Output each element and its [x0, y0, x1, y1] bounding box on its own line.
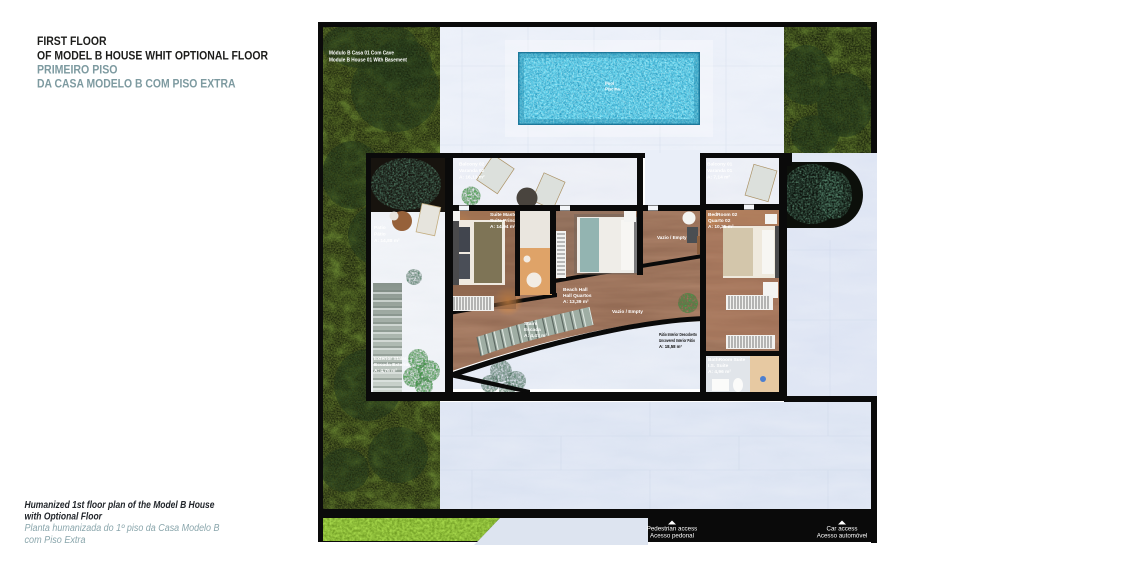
svg-text:Beach Hall: Beach Hall — [563, 287, 588, 293]
svg-text:Car access: Car access — [827, 526, 858, 533]
svg-text:Varanda 01: Varanda 01 — [707, 168, 733, 174]
svg-text:Varanda 02: Varanda 02 — [459, 168, 485, 174]
svg-text:Acesso pedonal: Acesso pedonal — [650, 533, 694, 540]
svg-text:with Optional Floor: with Optional Floor — [25, 512, 103, 523]
svg-text:Module B House 01 With Basemen: Module B House 01 With Basement — [329, 58, 407, 64]
svg-text:DA CASA MODELO B COM PISO EXT: DA CASA MODELO B COM PISO EXTRA — [37, 77, 236, 91]
svg-text:Balcony 01: Balcony 01 — [707, 162, 733, 168]
svg-text:Pool: Pool — [605, 81, 614, 86]
svg-text:Pátio Interior Descoberto: Pátio Interior Descoberto — [659, 332, 697, 337]
svg-text:Escada Exterior: Escada Exterior — [374, 362, 410, 368]
svg-text:A: 13,39 m²: A: 13,39 m² — [563, 299, 589, 305]
svg-text:Piscina: Piscina — [605, 86, 620, 91]
svg-text:Módulo B Casa 01 Com Cave: Módulo B Casa 01 Com Cave — [329, 51, 394, 57]
svg-text:BedRoom 02: BedRoom 02 — [708, 212, 738, 218]
svg-text:com Piso Extra: com Piso Extra — [25, 535, 86, 546]
svg-text:A: 18,58 m²: A: 18,58 m² — [659, 344, 682, 349]
svg-text:Humanized 1st floor plan of th: Humanized 1st floor plan of the Model B … — [25, 500, 215, 511]
svg-text:Escada: Escada — [524, 327, 541, 333]
svg-text:A: 4,47 m²: A: 4,47 m² — [524, 333, 547, 339]
svg-text:A: 4,76 m²: A: 4,76 m² — [374, 368, 397, 374]
svg-text:A: 4,96 m²: A: 4,96 m² — [708, 369, 731, 375]
svg-text:Stairs: Stairs — [524, 321, 538, 327]
svg-text:Acesso automóvel: Acesso automóvel — [817, 533, 868, 540]
svg-text:FIRST FLOOR: FIRST FLOOR — [37, 34, 107, 48]
svg-text:A: 10,25 m²: A: 10,25 m² — [708, 224, 734, 230]
svg-text:Uncovered Interior Pátio: Uncovered Interior Pátio — [659, 338, 695, 343]
svg-text:A: 7,14 m²: A: 7,14 m² — [707, 175, 730, 181]
svg-text:BathRoom Suite: BathRoom Suite — [708, 357, 746, 363]
svg-text:A: 16,13 m²: A: 16,13 m² — [459, 175, 485, 181]
svg-text:Balcony 02: Balcony 02 — [459, 162, 485, 168]
svg-text:Hall Quartos: Hall Quartos — [563, 293, 592, 299]
svg-text:Suite Master: Suite Master — [490, 212, 519, 218]
svg-text:Pátio: Pátio — [374, 232, 386, 238]
svg-text:Patio: Patio — [374, 225, 386, 231]
svg-text:Pedestrian access: Pedestrian access — [647, 526, 698, 533]
svg-text:I.S. Suite: I.S. Suite — [708, 363, 729, 369]
svg-text:A: 14,88 m²: A: 14,88 m² — [374, 238, 400, 244]
svg-text:PRIMEIRO PISO: PRIMEIRO PISO — [37, 63, 118, 77]
svg-text:Planta humanizada do 1º piso d: Planta humanizada do 1º piso da Casa Mod… — [25, 523, 220, 534]
svg-text:OF MODEL B HOUSE WHIT OPTIONAL: OF MODEL B HOUSE WHIT OPTIONAL FLOOR — [37, 49, 268, 63]
svg-text:Exterior Stairs: Exterior Stairs — [374, 356, 407, 362]
svg-text:Quarto 02: Quarto 02 — [708, 218, 731, 224]
svg-text:A: 14,94 m²: A: 14,94 m² — [490, 224, 516, 230]
svg-text:Vazio / Empty: Vazio / Empty — [657, 235, 687, 240]
svg-text:Vazio / Empty: Vazio / Empty — [612, 309, 643, 315]
